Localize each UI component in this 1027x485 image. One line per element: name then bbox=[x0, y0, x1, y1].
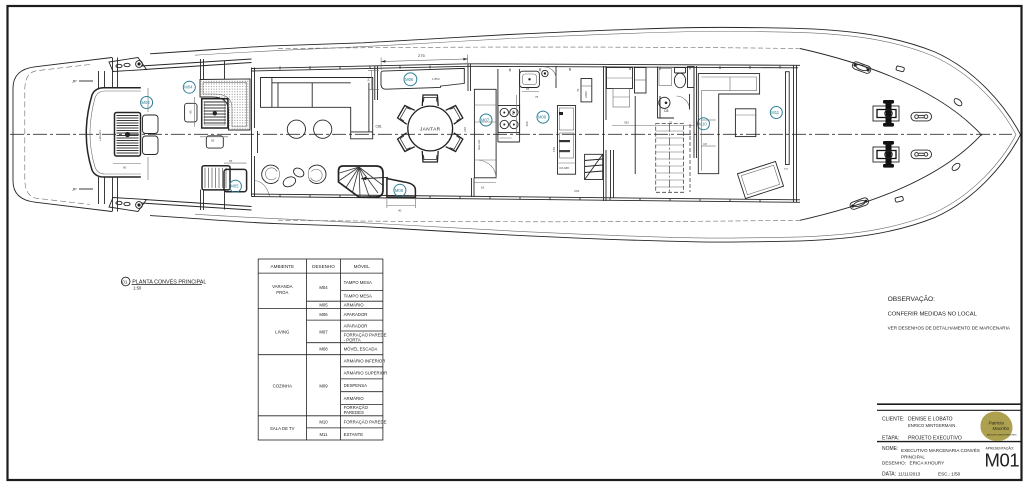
svg-text:90: 90 bbox=[123, 166, 127, 170]
svg-text:JP: JP bbox=[72, 79, 77, 84]
svg-text:01: 01 bbox=[122, 280, 128, 285]
svg-text:40: 40 bbox=[398, 209, 402, 213]
svg-text:79: 79 bbox=[576, 88, 580, 92]
svg-text:M09: M09 bbox=[538, 115, 547, 120]
svg-text:ERICA KHOURY: ERICA KHOURY bbox=[910, 461, 945, 466]
svg-text:63: 63 bbox=[481, 186, 485, 190]
svg-text:DESENHO: DESENHO bbox=[312, 264, 335, 269]
svg-text:APARADOR: APARADOR bbox=[344, 324, 368, 329]
svg-text:APARADOR: APARADOR bbox=[344, 312, 368, 317]
svg-text:PAREDES: PAREDES bbox=[344, 410, 364, 415]
svg-text:85: 85 bbox=[189, 110, 193, 114]
svg-text:SALA DE TV: SALA DE TV bbox=[270, 426, 295, 431]
svg-text:M08: M08 bbox=[319, 347, 328, 352]
svg-text:M11: M11 bbox=[319, 432, 328, 437]
svg-text:ARMARIO: ARMARIO bbox=[500, 136, 512, 140]
svg-text:1:50: 1:50 bbox=[133, 286, 142, 291]
svg-text:65: 65 bbox=[229, 159, 233, 163]
svg-text:TV: TV bbox=[784, 167, 788, 171]
svg-text:ETAPA:: ETAPA: bbox=[882, 436, 899, 442]
svg-text:156: 156 bbox=[511, 110, 515, 115]
svg-text:ARMÁRIO: ARMÁRIO bbox=[344, 396, 365, 401]
svg-text:M09: M09 bbox=[319, 384, 328, 389]
svg-text:LIVING: LIVING bbox=[275, 330, 290, 335]
svg-text:M10: M10 bbox=[319, 420, 328, 425]
svg-text:EXECUTIVO MARCENARIA CONVÉS: EXECUTIVO MARCENARIA CONVÉS bbox=[901, 447, 980, 453]
svg-text:- PORTA: - PORTA bbox=[344, 338, 361, 343]
svg-text:M05: M05 bbox=[230, 184, 239, 189]
svg-text:COZINHA: COZINHA bbox=[273, 384, 292, 389]
svg-text:240: 240 bbox=[463, 127, 467, 132]
svg-text:DENISE E LOBATO: DENISE E LOBATO bbox=[908, 417, 953, 423]
svg-text:CLIENTE:: CLIENTE: bbox=[882, 417, 905, 423]
svg-text:M08: M08 bbox=[395, 188, 404, 193]
svg-text:34: 34 bbox=[367, 78, 371, 82]
svg-text:TAMPO MESA: TAMPO MESA bbox=[344, 294, 372, 299]
svg-text:M04: M04 bbox=[319, 285, 328, 290]
svg-text:VER DESENHOS DE DETALHAMENTO D: VER DESENHOS DE DETALHAMENTO DE MARCENAR… bbox=[888, 326, 1011, 331]
svg-text:11/11/2013: 11/11/2013 bbox=[898, 472, 921, 477]
svg-text:158: 158 bbox=[552, 147, 556, 152]
svg-text:+aGa84: +aGa84 bbox=[98, 130, 102, 141]
svg-text:MÓVEL ESCADA: MÓVEL ESCADA bbox=[344, 347, 378, 352]
svg-text:ESTANTE: ESTANTE bbox=[344, 432, 364, 437]
svg-text:275: 275 bbox=[418, 53, 425, 58]
svg-text:C81: C81 bbox=[376, 125, 382, 129]
svg-text:FORRAÇÃO PAREDE: FORRAÇÃO PAREDE bbox=[344, 420, 387, 425]
svg-text:VARANDA: VARANDA bbox=[272, 284, 293, 289]
svg-text:1.850: 1.850 bbox=[432, 77, 440, 81]
svg-text:GELAD.: GELAD. bbox=[477, 139, 481, 150]
svg-text:MÓVEL: MÓVEL bbox=[354, 263, 371, 269]
svg-text:OBSERVAÇÃO:: OBSERVAÇÃO: bbox=[888, 294, 936, 303]
svg-text:ARMÁRIO SUPERIOR: ARMÁRIO SUPERIOR bbox=[344, 371, 388, 376]
svg-text:JANTAR: JANTAR bbox=[420, 126, 441, 132]
svg-text:NOME:: NOME: bbox=[882, 446, 898, 452]
svg-text:C8 A88: C8 A88 bbox=[559, 166, 569, 170]
svg-text:PROA: PROA bbox=[276, 290, 288, 295]
svg-text:ENRICO MINTGERMAIN: ENRICO MINTGERMAIN bbox=[908, 423, 955, 428]
svg-text:M06: M06 bbox=[405, 77, 414, 82]
svg-text:M05: M05 bbox=[319, 303, 328, 308]
svg-text:DESPENSA: DESPENSA bbox=[344, 383, 368, 388]
svg-text:75: 75 bbox=[535, 95, 539, 99]
svg-text:M04: M04 bbox=[142, 100, 151, 105]
svg-text:TAMPO MESA: TAMPO MESA bbox=[344, 280, 372, 285]
svg-text:AMBIENTE: AMBIENTE bbox=[271, 264, 294, 269]
svg-text:ARMÁRIO INFERIOR: ARMÁRIO INFERIOR bbox=[344, 359, 386, 364]
svg-text:M10: M10 bbox=[699, 121, 708, 126]
svg-text:PROJETO EXECUTIVO: PROJETO EXECUTIVO bbox=[908, 436, 962, 442]
svg-text:C8: C8 bbox=[703, 142, 707, 146]
svg-text:M07: M07 bbox=[481, 118, 490, 123]
svg-text:M04: M04 bbox=[184, 85, 193, 90]
svg-text:M06: M06 bbox=[319, 312, 328, 317]
svg-text:ARMÁRIO: ARMÁRIO bbox=[344, 303, 365, 308]
svg-text:55: 55 bbox=[526, 87, 530, 91]
svg-text:M11: M11 bbox=[771, 110, 780, 115]
svg-text:ARQUITETURA INTERIORES: ARQUITETURA INTERIORES bbox=[987, 434, 1017, 437]
svg-text:CONFERIR MEDIDAS NO LOCAL: CONFERIR MEDIDAS NO LOCAL bbox=[888, 312, 978, 318]
svg-text:PRINCIPAL: PRINCIPAL bbox=[901, 455, 925, 460]
svg-text:C81: C81 bbox=[574, 189, 580, 193]
svg-text:Marinho: Marinho bbox=[993, 426, 1010, 431]
svg-text:JP: JP bbox=[72, 187, 77, 192]
svg-text:M07: M07 bbox=[319, 330, 328, 335]
svg-text:DATA:: DATA: bbox=[882, 472, 896, 478]
svg-text:382: 382 bbox=[624, 121, 629, 125]
svg-text:C8: C8 bbox=[664, 109, 668, 113]
svg-text:ESC.: 1/50: ESC.: 1/50 bbox=[938, 472, 961, 477]
svg-text:DESENHO:: DESENHO: bbox=[882, 461, 906, 466]
svg-text:95: 95 bbox=[211, 139, 215, 143]
svg-text:M01: M01 bbox=[985, 450, 1020, 471]
svg-text:ARM: ARM bbox=[584, 91, 588, 98]
svg-text:Patricia: Patricia bbox=[989, 421, 1005, 426]
svg-text:300: 300 bbox=[525, 121, 529, 126]
